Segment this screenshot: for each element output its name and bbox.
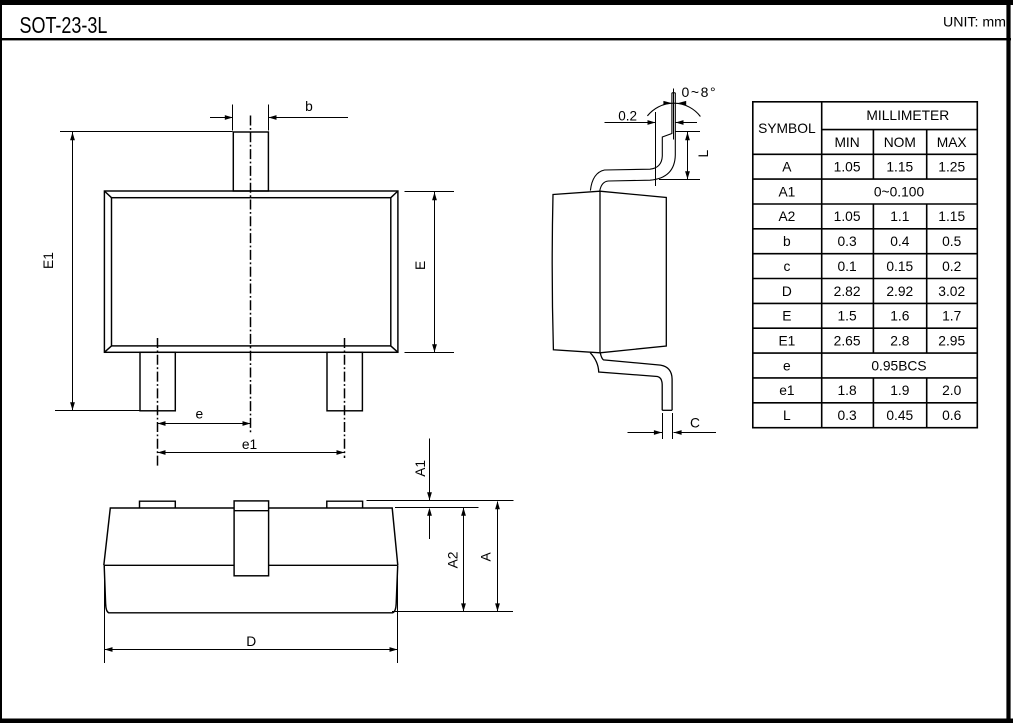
svg-text:L: L <box>696 150 711 158</box>
svg-text:0.3: 0.3 <box>838 234 858 249</box>
svg-text:e1: e1 <box>779 383 794 398</box>
svg-text:NOM: NOM <box>884 135 916 150</box>
svg-text:0.4: 0.4 <box>890 234 910 249</box>
svg-text:1.7: 1.7 <box>942 309 961 324</box>
svg-text:A1: A1 <box>413 460 428 477</box>
svg-text:e: e <box>196 407 204 422</box>
svg-text:1.5: 1.5 <box>838 309 858 324</box>
svg-text:D: D <box>246 634 256 649</box>
svg-text:C: C <box>690 415 700 430</box>
svg-text:MAX: MAX <box>937 135 967 150</box>
svg-text:E1: E1 <box>778 334 795 349</box>
svg-text:2.65: 2.65 <box>834 334 861 349</box>
svg-text:UNIT: mm: UNIT: mm <box>943 15 1006 31</box>
svg-text:A: A <box>479 552 494 562</box>
svg-text:0.95BCS: 0.95BCS <box>871 358 926 373</box>
svg-text:c: c <box>783 259 790 274</box>
svg-text:E1: E1 <box>41 252 56 269</box>
svg-text:0.3: 0.3 <box>838 408 858 423</box>
svg-text:A2: A2 <box>446 552 461 569</box>
svg-text:3.02: 3.02 <box>938 284 965 299</box>
svg-text:SOT-23-3L: SOT-23-3L <box>20 13 108 39</box>
svg-text:0.5: 0.5 <box>942 234 962 249</box>
svg-text:E: E <box>413 261 428 270</box>
svg-text:2.95: 2.95 <box>938 334 965 349</box>
svg-text:1.9: 1.9 <box>890 383 910 398</box>
svg-text:A: A <box>782 160 792 175</box>
svg-text:SYMBOL: SYMBOL <box>758 121 816 136</box>
svg-text:1.8: 1.8 <box>838 383 858 398</box>
svg-text:2.0: 2.0 <box>942 383 962 398</box>
svg-text:A2: A2 <box>778 209 795 224</box>
svg-text:E: E <box>782 309 791 324</box>
svg-text:1.1: 1.1 <box>890 209 909 224</box>
svg-text:A1: A1 <box>778 184 795 199</box>
svg-text:MILLIMETER: MILLIMETER <box>866 108 949 123</box>
svg-text:1.05: 1.05 <box>834 160 861 175</box>
svg-text:e1: e1 <box>242 437 257 452</box>
svg-text:2.8: 2.8 <box>890 334 910 349</box>
svg-text:0.6: 0.6 <box>942 408 962 423</box>
svg-text:e: e <box>783 358 791 373</box>
svg-text:L: L <box>783 408 791 423</box>
svg-text:0.45: 0.45 <box>886 408 913 423</box>
svg-text:1.05: 1.05 <box>834 209 861 224</box>
svg-text:0~0.100: 0~0.100 <box>874 184 925 199</box>
svg-text:0~8°: 0~8° <box>682 84 718 100</box>
svg-text:1.15: 1.15 <box>886 160 913 175</box>
svg-text:D: D <box>782 284 792 299</box>
svg-text:0.2: 0.2 <box>942 259 961 274</box>
svg-text:1.6: 1.6 <box>890 309 910 324</box>
svg-text:2.92: 2.92 <box>886 284 913 299</box>
svg-text:0.1: 0.1 <box>838 259 857 274</box>
svg-text:MIN: MIN <box>834 135 859 150</box>
svg-text:0.2: 0.2 <box>618 108 637 123</box>
svg-text:1.25: 1.25 <box>938 160 965 175</box>
svg-text:2.82: 2.82 <box>834 284 861 299</box>
svg-text:1.15: 1.15 <box>938 209 965 224</box>
svg-text:0.15: 0.15 <box>886 259 913 274</box>
svg-text:b: b <box>783 234 791 249</box>
svg-text:b: b <box>305 99 313 114</box>
